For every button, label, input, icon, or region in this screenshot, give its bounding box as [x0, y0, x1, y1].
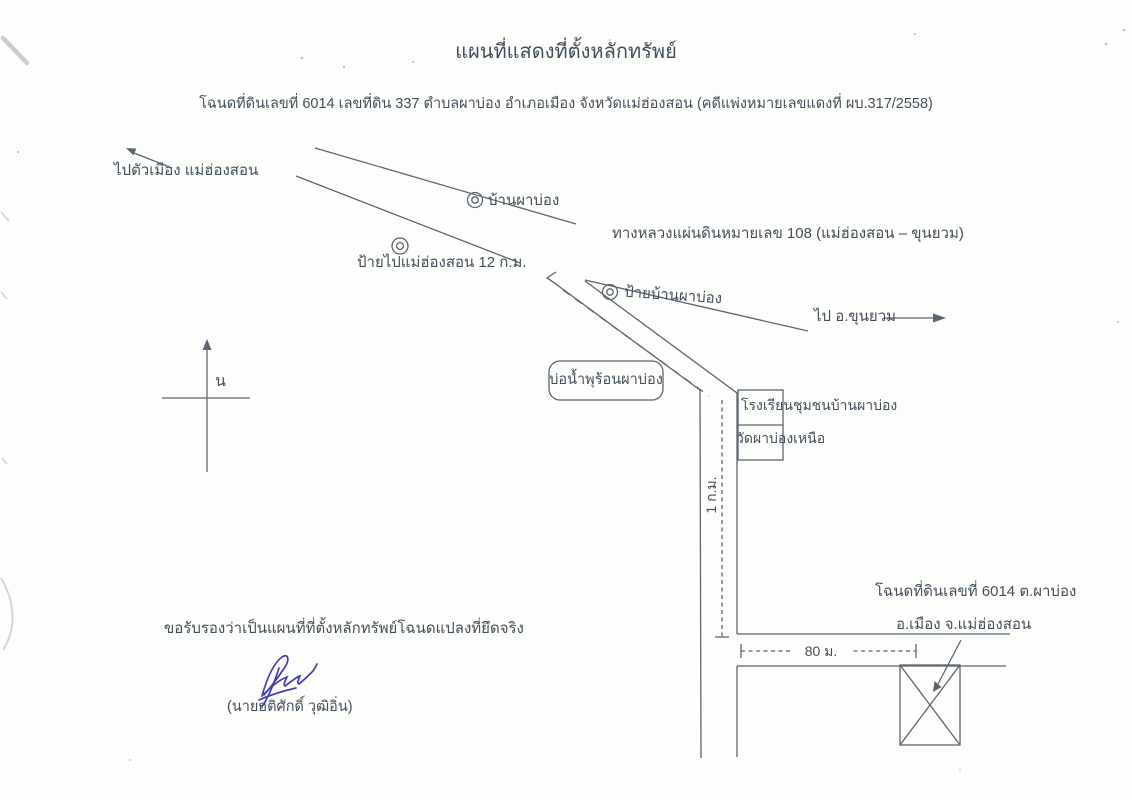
deed-subtitle: โฉนดที่ดินเลขที่ 6014 เลขที่ดิน 337 ตำบล… [0, 95, 1132, 113]
temple-label: วัดผาบ่องเหนือ [736, 430, 825, 448]
sign-12km-label: ป้ายไปแม่ฮ่องสอน 12 ก.ม. [357, 254, 527, 273]
signer-name: (นายอติศักดิ์ วุฒิอิ่น) [227, 698, 353, 716]
highway-lower-line-west [296, 176, 520, 263]
highway-label: ทางหลวงแผ่นดินหมายเลข 108 (แม่ฮ่องสอน – … [612, 225, 964, 244]
branch-road-right-line-upper [585, 281, 737, 634]
to-city-label: ไปตัวเมือง แม่ฮ่องสอน [114, 162, 258, 181]
branch-road-arrowhead-icon [547, 272, 556, 284]
measure-1km-line [715, 400, 729, 637]
sign-village-marker-icon [603, 285, 618, 300]
scan-edge-marks [1, 212, 9, 464]
highway-upper-line [315, 148, 576, 224]
page-title: แผนที่แสดงที่ตั้งหลักทรัพย์ [0, 40, 1132, 65]
distance-80m-label: 80 ม. [792, 643, 850, 661]
sign-12km-marker-icon [392, 238, 408, 254]
certification-statement: ขอรับรองว่าเป็นแผนที่ที่ตั้งหลักทรัพย์โฉ… [164, 620, 524, 639]
hot-spring-label: บ่อน้ำพุร้อนผาบ่อง [549, 361, 663, 400]
scanned-map-document: แผนที่แสดงที่ตั้งหลักทรัพย์ โฉนดที่ดินเล… [0, 0, 1132, 800]
deed-location-line1: โฉนดที่ดินเลขที่ 6014 ต.ผาบ่อง [875, 583, 1076, 602]
parcel-box-icon [900, 665, 960, 745]
north-compass-icon [162, 339, 250, 472]
distance-1km-label: 1 ก.ม. [704, 472, 720, 518]
map-drawing [0, 0, 1132, 800]
to-khunyuam-label: ไป อ.ขุนยวม [814, 308, 896, 327]
north-label: น [215, 372, 226, 392]
branch-road-left-line [549, 279, 701, 758]
village-label: บ้านผาบ่อง [488, 192, 559, 211]
school-label: โรงเรียนชุมชนบ้านผาบ่อง [741, 397, 897, 415]
deed-location-line2: อ.เมือง จ.แม่ฮ่องสอน [896, 616, 1031, 635]
scan-page-curl [1, 578, 13, 650]
